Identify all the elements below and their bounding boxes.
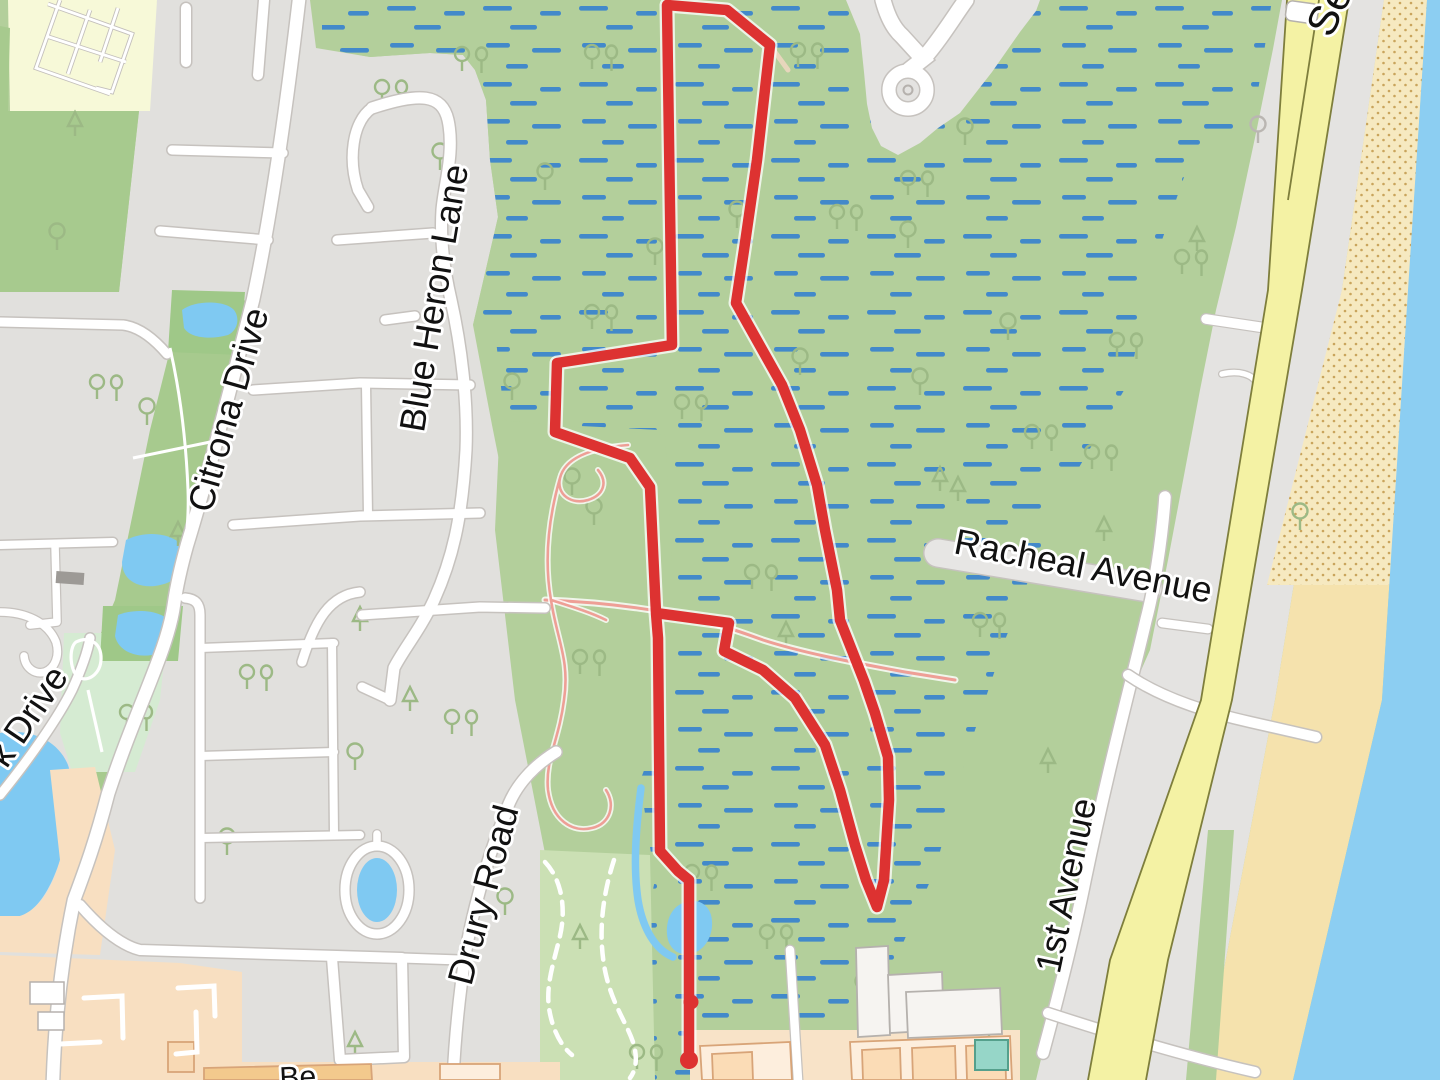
svg-text:Be: Be: [279, 1060, 317, 1080]
